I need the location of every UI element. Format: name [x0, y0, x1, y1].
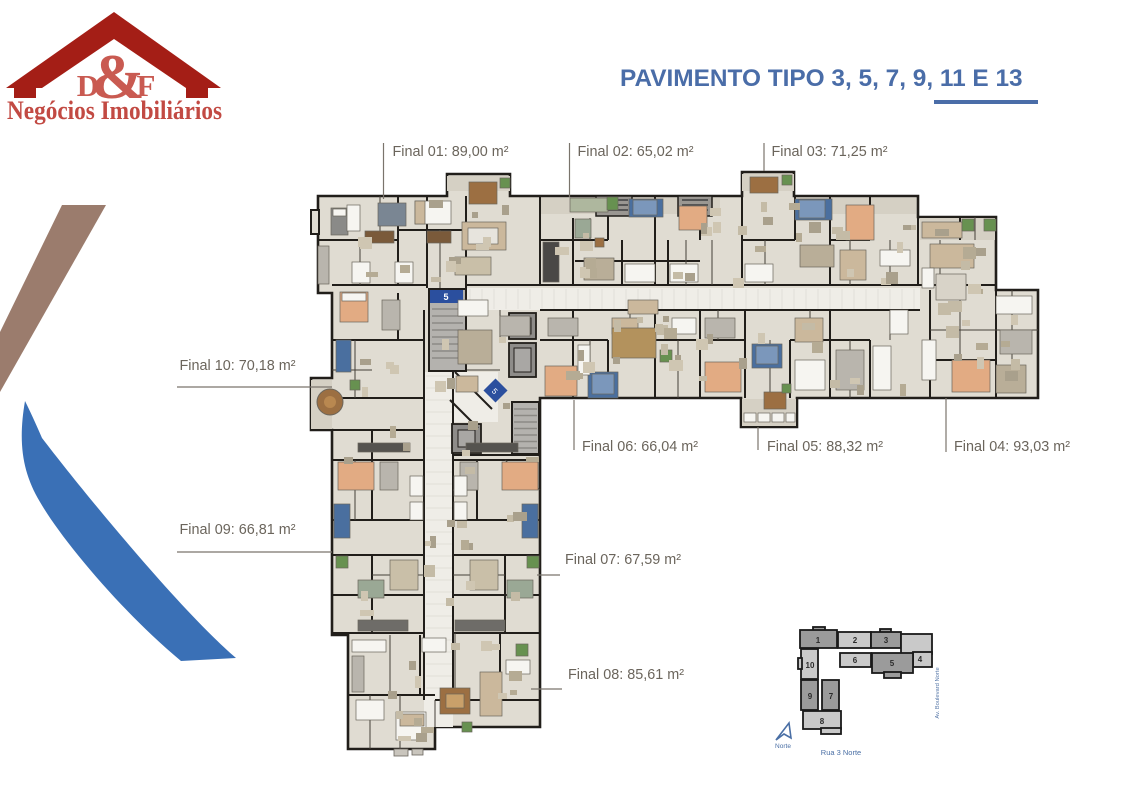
svg-text:Norte: Norte [775, 743, 791, 750]
svg-text:Negócios Imobiliários: Negócios Imobiliários [7, 96, 222, 125]
svg-text:9: 9 [808, 692, 813, 701]
svg-text:5: 5 [443, 292, 448, 302]
svg-text:2: 2 [853, 636, 858, 645]
svg-text:3: 3 [884, 636, 889, 645]
svg-text:Rua 3 Norte: Rua 3 Norte [821, 748, 861, 757]
svg-text:6: 6 [853, 656, 858, 665]
svg-text:10: 10 [806, 661, 815, 670]
svg-text:4: 4 [918, 655, 923, 664]
svg-text:Av. Boulevard Norte: Av. Boulevard Norte [935, 667, 941, 718]
svg-text:5: 5 [890, 659, 895, 668]
svg-text:1: 1 [816, 636, 821, 645]
svg-text:8: 8 [820, 717, 825, 726]
svg-text:7: 7 [829, 692, 834, 701]
